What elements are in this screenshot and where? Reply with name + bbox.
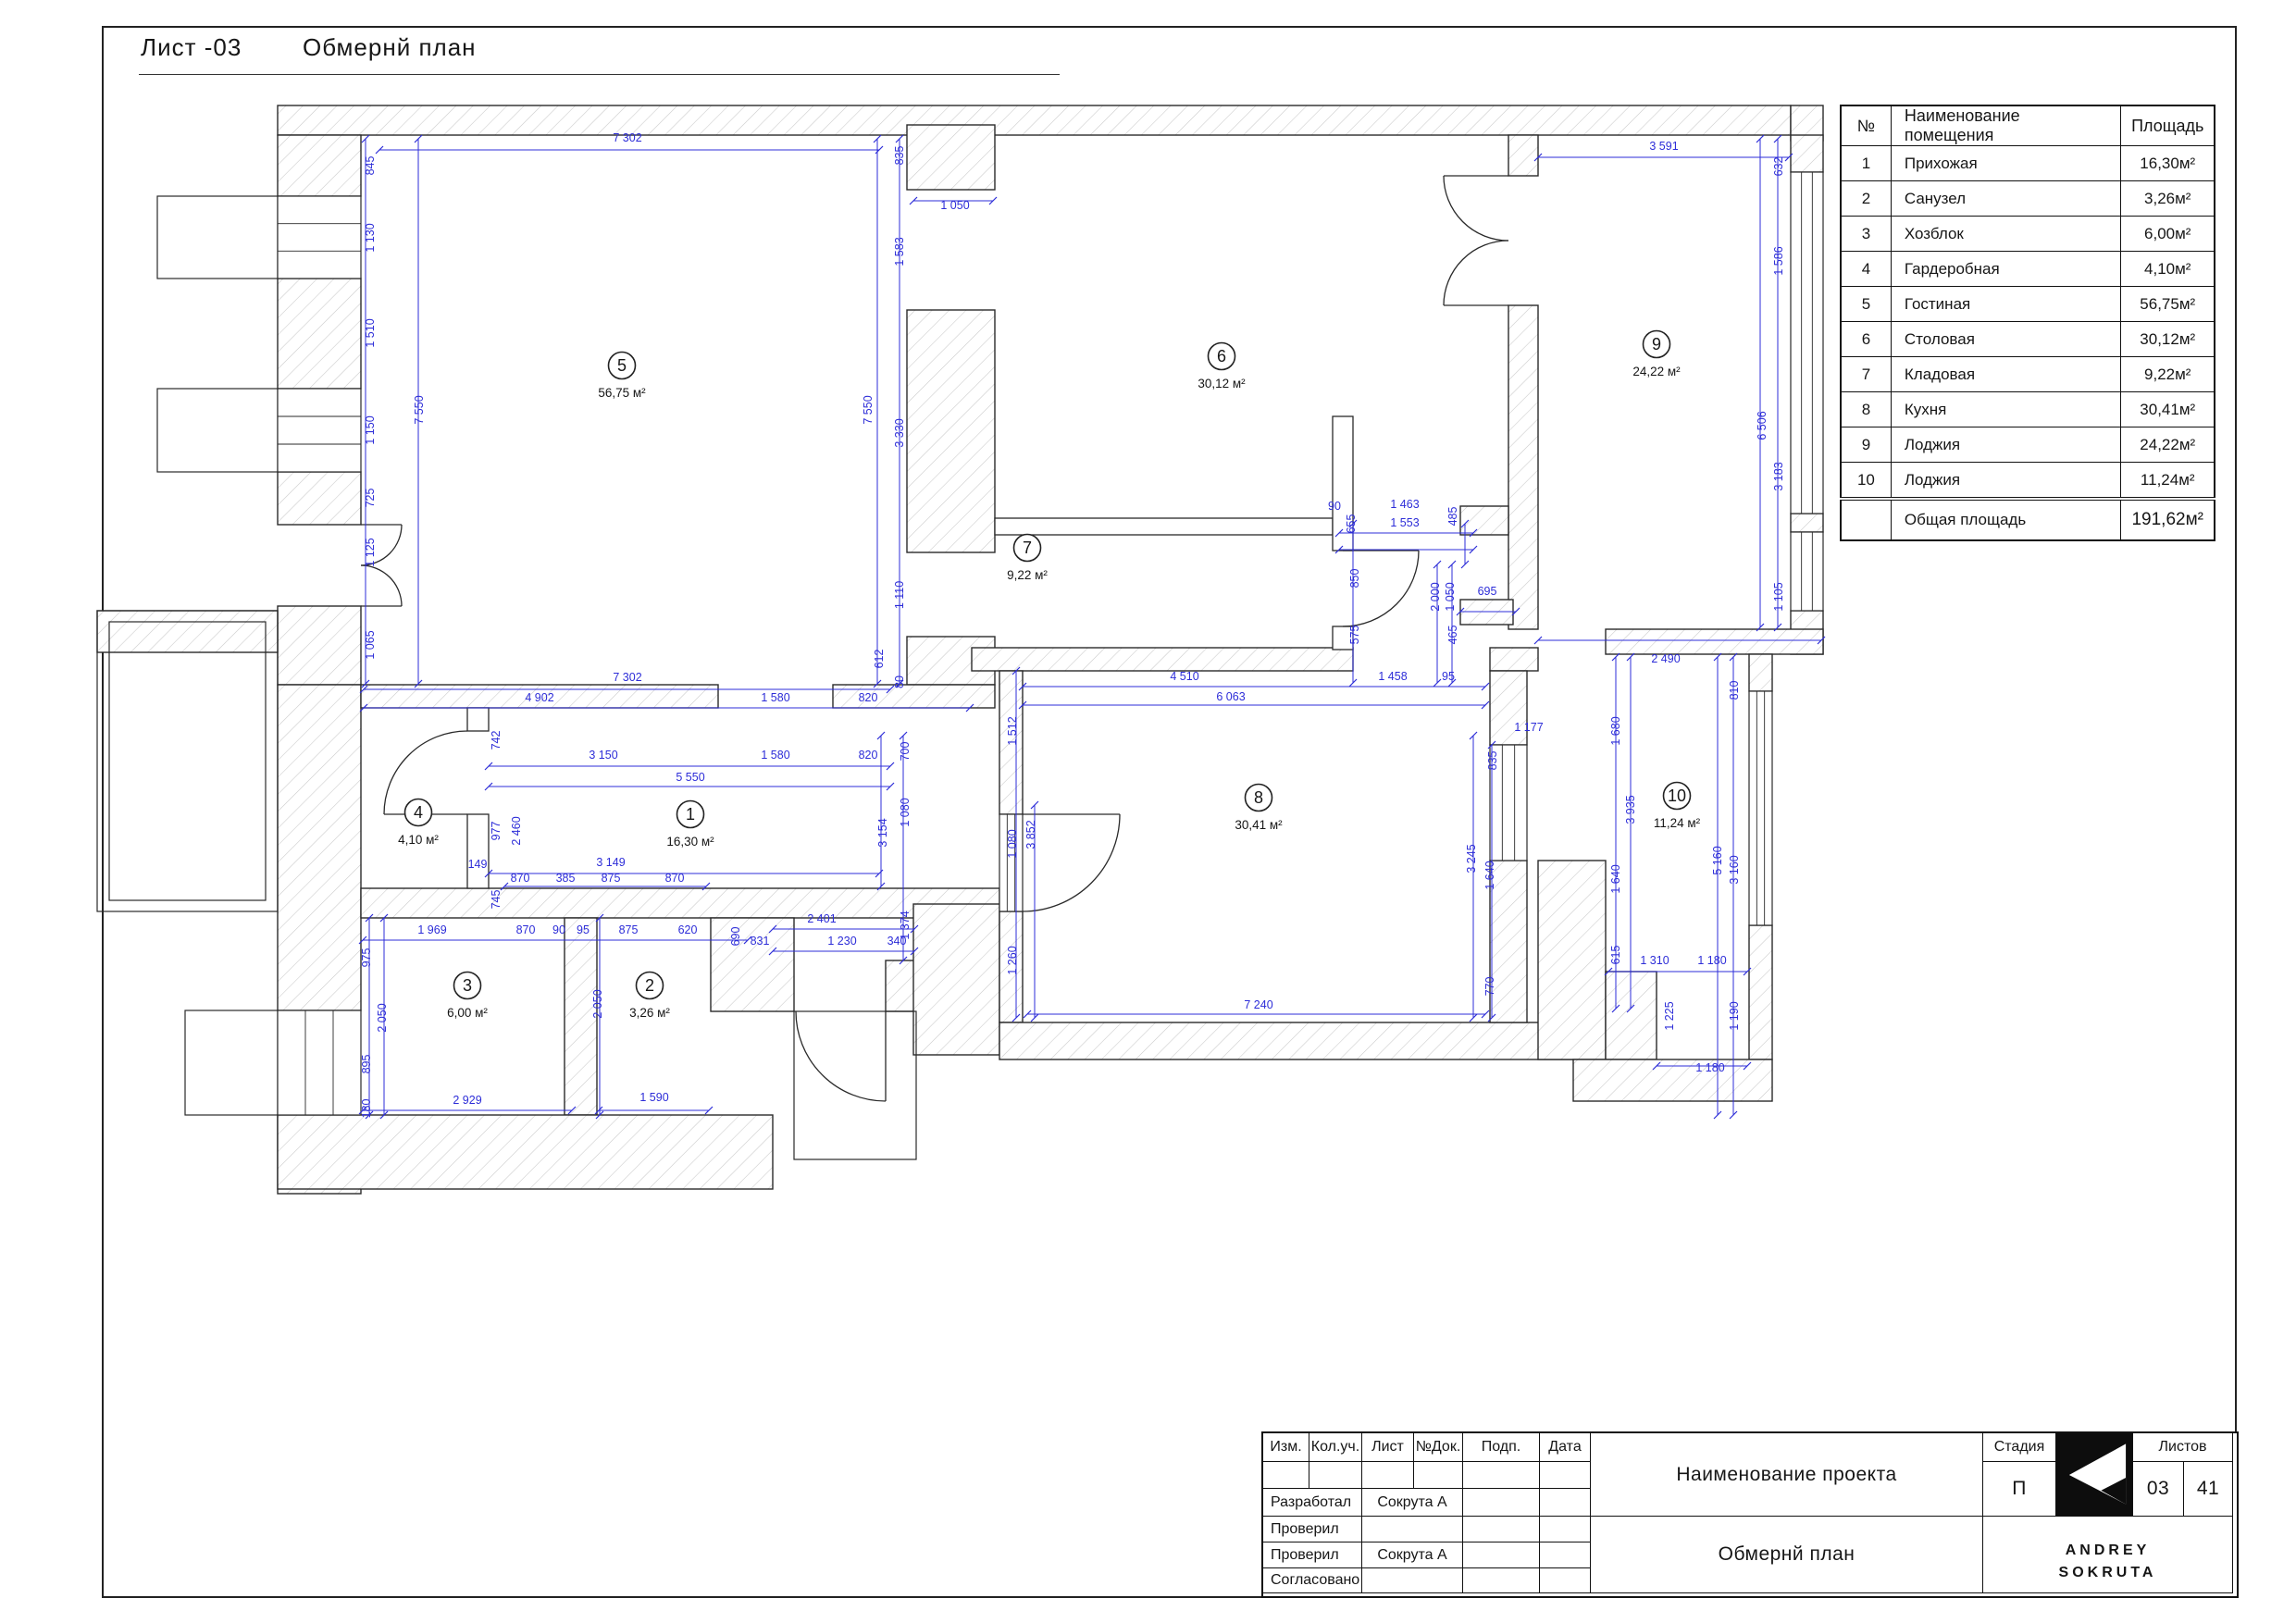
room-number: 3 — [463, 976, 472, 995]
wall — [278, 606, 361, 685]
room-name-cell: Лоджия — [1891, 427, 2121, 463]
room-number: 7 — [1023, 539, 1032, 557]
thin-outline — [185, 1010, 278, 1115]
wall — [833, 685, 995, 708]
dimension-label: 725 — [364, 489, 377, 508]
dimension-label: 7 240 — [1244, 998, 1272, 1011]
wall — [1508, 135, 1538, 176]
room-area-label: 30,41 м² — [1235, 818, 1283, 832]
room-number-cell — [1841, 499, 1891, 540]
dimension-label: 975 — [360, 948, 373, 968]
logo-cell — [2056, 1433, 2133, 1517]
dimension-label: 340 — [887, 935, 907, 948]
room-number-cell: 4 — [1841, 252, 1891, 287]
wall — [1606, 629, 1823, 654]
dimension-label: 1 969 — [417, 923, 446, 936]
drawing-title-cell: Обмернй план — [1591, 1517, 1983, 1593]
room-number: 4 — [414, 803, 423, 822]
rev-header-4: №Док. — [1414, 1433, 1463, 1462]
sign-name-cell — [1362, 1517, 1463, 1542]
sign-signature-cell — [1463, 1542, 1540, 1568]
table-row: 6Столовая30,12м² — [1841, 322, 2215, 357]
dimension-label: 4 510 — [1170, 670, 1198, 683]
room-number: 9 — [1652, 335, 1661, 353]
room-name-cell: Наименование помещения — [1891, 105, 2121, 146]
room-name-cell: Санузел — [1891, 181, 2121, 217]
dimension-label: 7 302 — [613, 131, 641, 144]
room-area-cell: 6,00м² — [2121, 217, 2215, 252]
dimension-label: 1 065 — [364, 630, 377, 659]
sign-role-cell: Проверил — [1263, 1542, 1362, 1568]
dimension-label: 6 063 — [1216, 690, 1245, 703]
table-row: 10Лоджия11,24м² — [1841, 463, 2215, 500]
wall — [907, 310, 995, 552]
room-area-cell: 11,24м² — [2121, 463, 2215, 500]
dimension-label: 1 310 — [1640, 954, 1669, 967]
room-number: 8 — [1254, 788, 1263, 807]
room-area-cell: 24,22м² — [2121, 427, 2215, 463]
dimension-label: 3 330 — [893, 418, 906, 447]
dimension-label: 95 — [577, 923, 590, 936]
table-row: 7Кладовая9,22м² — [1841, 357, 2215, 392]
table-row: 3Хозблок6,00м² — [1841, 217, 2215, 252]
dimension-label: 3 852 — [1024, 820, 1037, 849]
partition-wall — [467, 708, 489, 731]
thin-outline — [109, 622, 266, 900]
table-row: 2Санузел3,26м² — [1841, 181, 2215, 217]
rev-empty-cell — [1463, 1462, 1540, 1489]
dimension-label: 655 — [1345, 514, 1358, 534]
dimension-label: 1 580 — [761, 691, 789, 704]
sign-signature-cell — [1463, 1489, 1540, 1517]
sign-name-cell: Сокрута А — [1362, 1542, 1463, 1568]
dimension-label: 875 — [619, 923, 639, 936]
dimension-label: 835 — [1486, 751, 1499, 771]
rev-empty-cell — [1263, 1462, 1309, 1489]
dimension-label: 2 401 — [807, 912, 836, 925]
room-area-cell: Площадь — [2121, 105, 2215, 146]
rev-header-6: Дата — [1540, 1433, 1591, 1462]
wall — [999, 1022, 1582, 1059]
room-area-label: 24,22 м² — [1632, 365, 1681, 378]
dimension-label: 1 105 — [1772, 582, 1785, 611]
dimension-label: 1 225 — [1663, 1001, 1676, 1030]
dimension-label: 745 — [490, 890, 503, 910]
table-row: 1Прихожая16,30м² — [1841, 146, 2215, 181]
dimension-label: 835 — [893, 146, 906, 166]
room-number: 10 — [1668, 787, 1686, 805]
dimension-label: 149 — [468, 858, 488, 871]
dimension-label: 575 — [1348, 626, 1361, 645]
room-area-label: 3,26 м² — [629, 1006, 670, 1020]
room-number: 1 — [686, 805, 695, 824]
dimension-label: 870 — [665, 872, 685, 885]
room-name-cell: Гардеробная — [1891, 252, 2121, 287]
room-area-cell: 191,62м² — [2121, 499, 2215, 540]
dimension-label: 875 — [602, 872, 621, 885]
sheets-label-cell: Листов — [2133, 1433, 2233, 1462]
window — [278, 196, 361, 279]
room-name-cell: Гостиная — [1891, 287, 2121, 322]
stage-label-cell: Стадия — [1983, 1433, 2056, 1462]
sign-signature-cell — [1463, 1568, 1540, 1593]
room-number-cell: 8 — [1841, 392, 1891, 427]
dimension-label: 1 150 — [364, 415, 377, 444]
room-number-cell: 5 — [1841, 287, 1891, 322]
dimension-label: 3 149 — [596, 856, 625, 869]
room-area-cell: 56,75м² — [2121, 287, 2215, 322]
room-area-label: 4,10 м² — [398, 833, 439, 847]
dimension-label: 1 130 — [364, 223, 377, 252]
room-name-cell: Лоджия — [1891, 463, 2121, 500]
sign-date-cell — [1540, 1568, 1591, 1593]
wall — [278, 105, 1791, 135]
table-row: 5Гостиная56,75м² — [1841, 287, 2215, 322]
dimension-label: 2 050 — [376, 1003, 389, 1032]
dimension-label: 385 — [556, 872, 576, 885]
room-area-label: 30,12 м² — [1198, 377, 1246, 390]
wall — [97, 611, 278, 652]
wall — [1490, 671, 1527, 745]
room-name-cell: Хозблок — [1891, 217, 2121, 252]
room-number-cell: № — [1841, 105, 1891, 146]
thin-outline — [157, 389, 278, 472]
rev-empty-cell — [1362, 1462, 1414, 1489]
dimension-label: 1 125 — [364, 538, 377, 566]
sheet-number-cell: 03 — [2133, 1462, 2184, 1517]
dimension-label: 977 — [490, 822, 503, 841]
rev-header-5: Подп. — [1463, 1433, 1540, 1462]
room-name-cell: Общая площадь — [1891, 499, 2121, 540]
room-name-cell: Кухня — [1891, 392, 2121, 427]
rev-empty-cell — [1309, 1462, 1362, 1489]
logo-icon — [2056, 1434, 2132, 1516]
dimension-label: 1 586 — [1772, 246, 1785, 275]
window — [278, 1010, 361, 1115]
room-area-cell: 30,12м² — [2121, 322, 2215, 357]
dimension-label: 3 154 — [876, 818, 889, 847]
dimension-label: 3 591 — [1649, 140, 1678, 153]
dimension-label: 80 — [893, 675, 906, 688]
door-arc — [1444, 176, 1508, 241]
dimension-label: 7 302 — [613, 671, 641, 684]
thin-outline — [97, 611, 278, 911]
wall — [278, 1115, 773, 1189]
wall — [278, 472, 361, 525]
dimension-label: 1 580 — [761, 749, 789, 762]
dimension-label: 5 550 — [676, 771, 704, 784]
sign-role-cell: Согласовано — [1263, 1568, 1362, 1593]
dimension-label: 1 080 — [1006, 829, 1019, 858]
dimension-label: 700 — [899, 742, 912, 762]
wall — [1749, 925, 1772, 1059]
dimension-label: 1 180 — [1695, 1061, 1724, 1074]
rev-header-1: Изм. — [1263, 1433, 1309, 1462]
dimension-label: 1 050 — [940, 199, 969, 212]
door-arc — [361, 565, 402, 606]
dimension-label: 1 190 — [1728, 1001, 1741, 1030]
dimension-label: 620 — [678, 923, 698, 936]
dimension-label: 1 230 — [827, 935, 856, 948]
room-number-cell: 10 — [1841, 463, 1891, 500]
wall — [1538, 861, 1606, 1059]
door-arc — [1444, 241, 1508, 305]
wall — [278, 279, 361, 389]
sign-date-cell — [1540, 1489, 1591, 1517]
sign-date-cell — [1540, 1517, 1591, 1542]
wall — [1791, 514, 1823, 532]
dimension-label: 1 050 — [1444, 582, 1457, 611]
dimension-label: 3 245 — [1465, 844, 1478, 873]
dimension-label: 770 — [1483, 977, 1496, 997]
room-name-cell: Столовая — [1891, 322, 2121, 357]
dimension-label: 1 512 — [1006, 716, 1019, 745]
dimension-label: 3 160 — [1728, 855, 1741, 884]
wall — [1749, 654, 1772, 691]
dimension-label: 690 — [729, 927, 742, 947]
dimension-label: 870 — [511, 872, 530, 885]
dimension-label: 850 — [1348, 569, 1361, 588]
window — [1791, 532, 1823, 611]
window — [278, 389, 361, 472]
room-number: 5 — [617, 356, 627, 375]
sheets-total-cell: 41 — [2184, 1462, 2233, 1517]
dimension-label: 1 177 — [1514, 721, 1543, 734]
dimension-label: 485 — [1446, 507, 1459, 527]
wall — [972, 648, 1353, 671]
dimension-label: 4 902 — [525, 691, 553, 704]
room-number-cell: 6 — [1841, 322, 1891, 357]
wall — [1791, 135, 1823, 172]
stage-value-cell: П — [1983, 1462, 2056, 1517]
sign-role-cell: Проверил — [1263, 1517, 1362, 1542]
dimension-label: 7 550 — [862, 395, 875, 424]
thin-outline — [794, 1011, 916, 1159]
dimension-label: 2 460 — [510, 816, 523, 845]
dimension-label: 180 — [360, 1099, 373, 1119]
wall — [1508, 305, 1538, 629]
dimension-label: 1 458 — [1378, 670, 1407, 683]
dimension-label: 95 — [1442, 670, 1455, 683]
dimension-label: 1 583 — [893, 237, 906, 266]
dimension-label: 632 — [1772, 157, 1785, 177]
wall — [711, 918, 794, 1011]
dimension-label: 2 000 — [1429, 582, 1442, 611]
dimension-label: 1 510 — [364, 318, 377, 347]
window — [1791, 172, 1823, 514]
sign-role-cell: Разработал — [1263, 1489, 1362, 1517]
dimension-label: 3 935 — [1624, 795, 1637, 824]
dimension-label: 1 680 — [1609, 716, 1622, 745]
dimension-label: 3 150 — [589, 749, 617, 762]
dimension-label: 1 640 — [1483, 861, 1496, 889]
room-area-cell: 9,22м² — [2121, 357, 2215, 392]
room-area-cell: 30,41м² — [2121, 392, 2215, 427]
table-row: 9Лоджия24,22м² — [1841, 427, 2215, 463]
dimension-label: 831 — [751, 935, 770, 948]
window — [999, 814, 1023, 911]
dimension-label: 1 080 — [899, 798, 912, 826]
table-row: 4Гардеробная4,10м² — [1841, 252, 2215, 287]
dimension-label: 870 — [516, 923, 536, 936]
dimension-label: 615 — [1609, 946, 1622, 965]
dimension-label: 845 — [364, 156, 377, 176]
dimension-label: 6 506 — [1756, 411, 1769, 440]
room-name-cell: Кладовая — [1891, 357, 2121, 392]
room-area-label: 16,30 м² — [666, 835, 714, 849]
room-number-cell: 7 — [1841, 357, 1891, 392]
room-number-cell: 2 — [1841, 181, 1891, 217]
partition-wall — [995, 518, 1333, 535]
room-area-cell: 16,30м² — [2121, 146, 2215, 181]
dimension-label: 1 640 — [1609, 864, 1622, 893]
dimension-label: 5 160 — [1711, 846, 1724, 874]
dimension-label: 1 590 — [639, 1091, 668, 1104]
dimension-label: 3 183 — [1772, 462, 1785, 490]
sign-name-cell — [1362, 1568, 1463, 1593]
dimension-label: 1 463 — [1390, 498, 1419, 511]
dimension-label: 2 490 — [1651, 652, 1680, 665]
room-area-cell: 4,10м² — [2121, 252, 2215, 287]
room-number-cell: 3 — [1841, 217, 1891, 252]
project-name-cell: Наименование проекта — [1591, 1433, 1983, 1517]
dimension-label: 820 — [859, 749, 878, 762]
dimension-label: 90 — [1328, 500, 1341, 513]
title-block: Изм.Кол.уч.Лист№Док.Подп.ДатаНаименовани… — [1261, 1431, 2239, 1598]
wall — [913, 904, 999, 1055]
dimension-label: 820 — [859, 691, 878, 704]
dimension-label: 1 260 — [1006, 946, 1019, 974]
window — [1749, 691, 1772, 925]
room-number: 6 — [1217, 347, 1226, 365]
brand-cell: ANDREYSOKRUTA — [1983, 1517, 2233, 1593]
dimension-label: 465 — [1446, 626, 1459, 645]
room-name-cell: Прихожая — [1891, 146, 2121, 181]
dimension-label: 2 050 — [591, 989, 604, 1018]
dimension-label: 742 — [490, 731, 503, 750]
brand-text: ANDREY — [2066, 1540, 2151, 1562]
wall — [278, 135, 361, 196]
room-area-label: 11,24 м² — [1654, 816, 1701, 830]
room-number: 2 — [645, 976, 654, 995]
sign-signature-cell — [1463, 1517, 1540, 1542]
rev-empty-cell — [1540, 1462, 1591, 1489]
room-area-label: 6,00 м² — [447, 1006, 488, 1020]
dimension-label: 695 — [1478, 585, 1497, 598]
dimension-label: 612 — [873, 650, 886, 669]
door-arc — [796, 1011, 886, 1101]
rooms-table: №Наименование помещенияПлощадь1Прихожая1… — [1840, 105, 2215, 541]
dimension-label: 1 553 — [1390, 516, 1419, 529]
dimension-label: 90 — [552, 923, 565, 936]
sign-name-cell: Сокрута А — [1362, 1489, 1463, 1517]
rev-header-3: Лист — [1362, 1433, 1414, 1462]
room-area-label: 9,22 м² — [1007, 568, 1048, 582]
wall — [1490, 648, 1538, 671]
rev-empty-cell — [1414, 1462, 1463, 1489]
dimension-label: 1 110 — [893, 581, 906, 609]
rev-header-2: Кол.уч. — [1309, 1433, 1362, 1462]
brand-text: SOKRUTA — [2059, 1562, 2157, 1584]
table-row: 8Кухня30,41м² — [1841, 392, 2215, 427]
table-header-row: №Наименование помещенияПлощадь — [1841, 105, 2215, 146]
thin-outline — [157, 196, 278, 279]
table-row: Общая площадь191,62м² — [1841, 499, 2215, 540]
wall — [278, 685, 361, 1010]
room-area-label: 56,75 м² — [598, 386, 646, 400]
dimension-label: 810 — [1728, 681, 1741, 700]
dimension-label: 895 — [360, 1055, 373, 1074]
dimension-label: 7 550 — [413, 395, 426, 424]
wall — [907, 125, 995, 190]
sign-date-cell — [1540, 1542, 1591, 1568]
room-number-cell: 9 — [1841, 427, 1891, 463]
room-number-cell: 1 — [1841, 146, 1891, 181]
dimension-label: 2 929 — [453, 1094, 481, 1107]
dimension-label: 1 180 — [1697, 954, 1726, 967]
room-area-cell: 3,26м² — [2121, 181, 2215, 217]
